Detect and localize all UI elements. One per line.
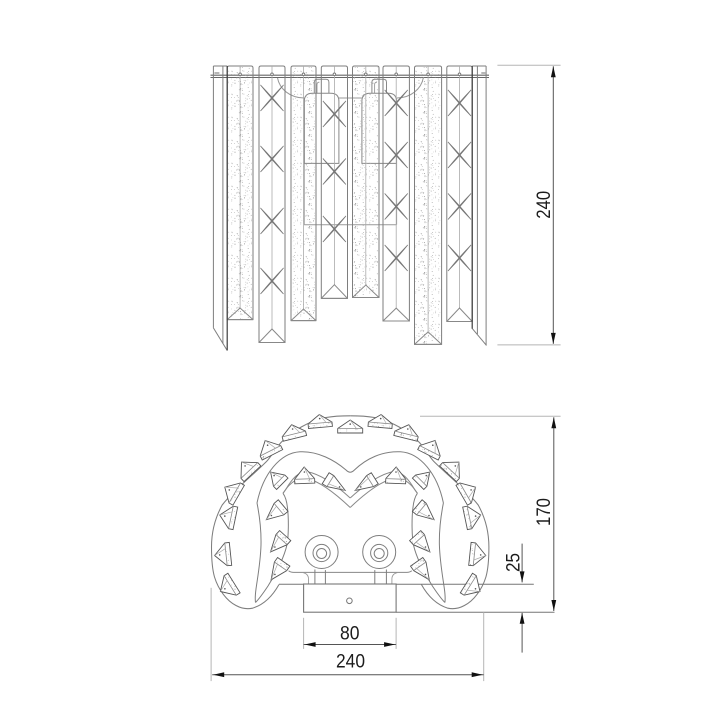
- svg-text:80: 80: [340, 623, 360, 645]
- svg-text:170: 170: [533, 498, 555, 526]
- svg-text:240: 240: [533, 191, 555, 219]
- svg-text:240: 240: [336, 651, 365, 673]
- svg-text:25: 25: [503, 553, 525, 572]
